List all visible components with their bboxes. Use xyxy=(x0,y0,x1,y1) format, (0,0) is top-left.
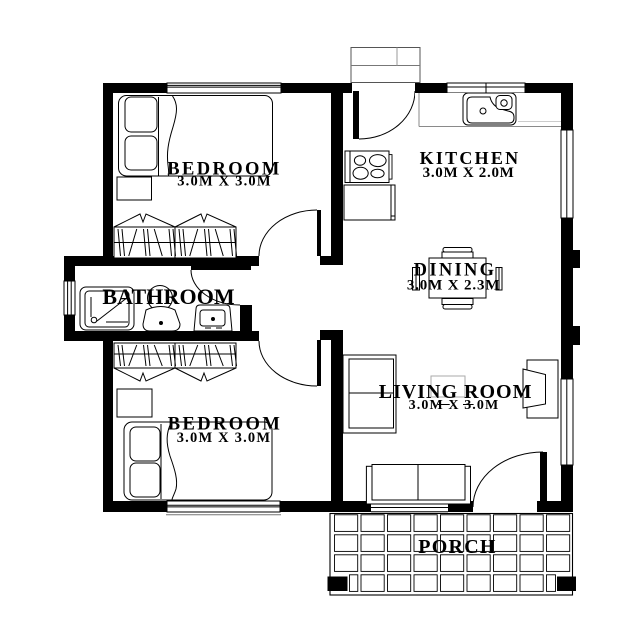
svg-text:3.0M X 3.0M: 3.0M X 3.0M xyxy=(177,430,272,446)
svg-text:3.0M X 2.0M: 3.0M X 2.0M xyxy=(423,165,515,181)
svg-text:3.0M X 3.0M: 3.0M X 3.0M xyxy=(409,398,500,413)
svg-text:3.0M X 3.0M: 3.0M X 3.0M xyxy=(177,174,272,190)
svg-text:PORCH: PORCH xyxy=(418,536,496,558)
svg-text:BATHROOM: BATHROOM xyxy=(102,284,235,309)
svg-text:3.0M X 2.3M: 3.0M X 2.3M xyxy=(407,278,501,294)
